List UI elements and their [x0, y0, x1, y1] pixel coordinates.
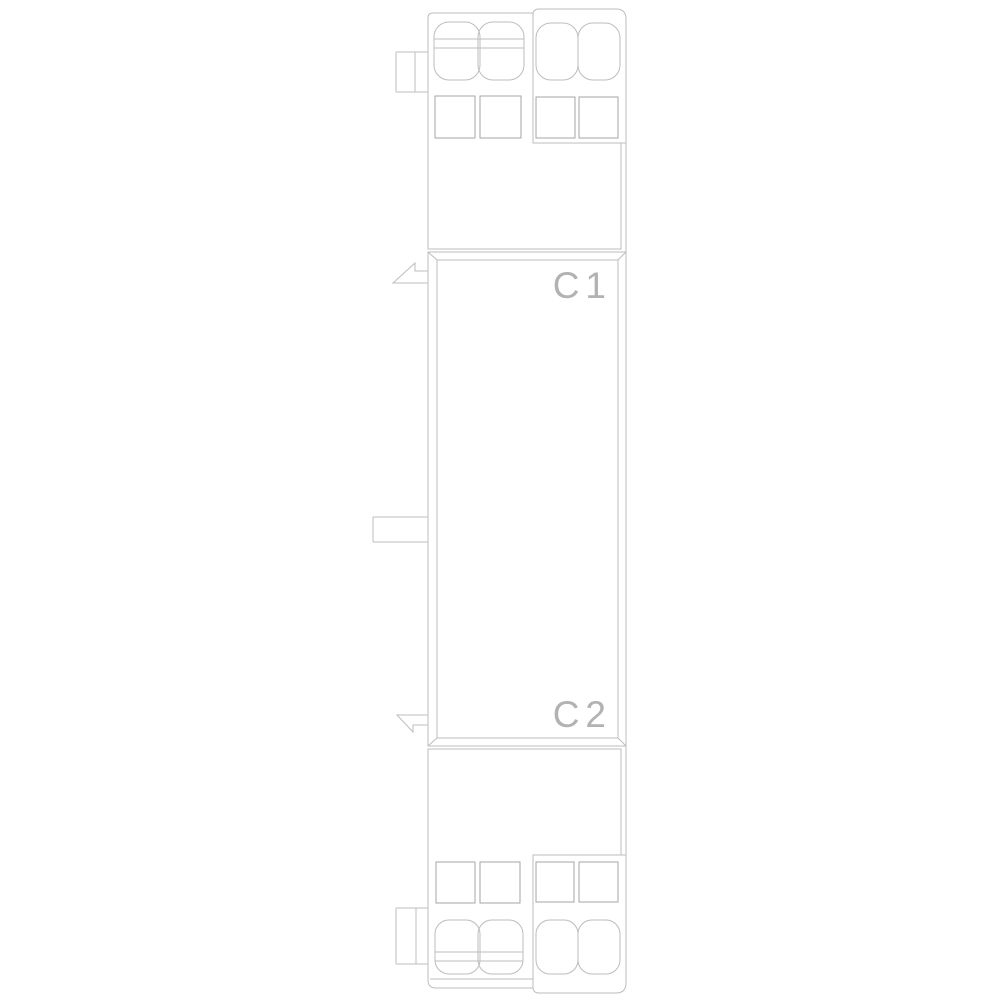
bottom-mounting-tab: [396, 908, 428, 964]
middle-body: C1 C2: [373, 252, 626, 746]
top-mounting-tab: [396, 52, 428, 92]
body-outline: [428, 252, 626, 746]
top-terminal-block: [396, 9, 626, 249]
terminal-label-c1: C1: [553, 265, 612, 306]
lower-latch-arrow-icon: [397, 715, 428, 732]
terminal-label-c2: C2: [553, 694, 612, 735]
component-side-view-drawing: C1 C2: [0, 0, 1000, 1000]
drawing-canvas: C1 C2: [0, 0, 1000, 1000]
bottom-terminal-block: [396, 749, 626, 993]
upper-latch-arrow-icon: [393, 263, 428, 283]
middle-mounting-tab: [373, 517, 428, 542]
